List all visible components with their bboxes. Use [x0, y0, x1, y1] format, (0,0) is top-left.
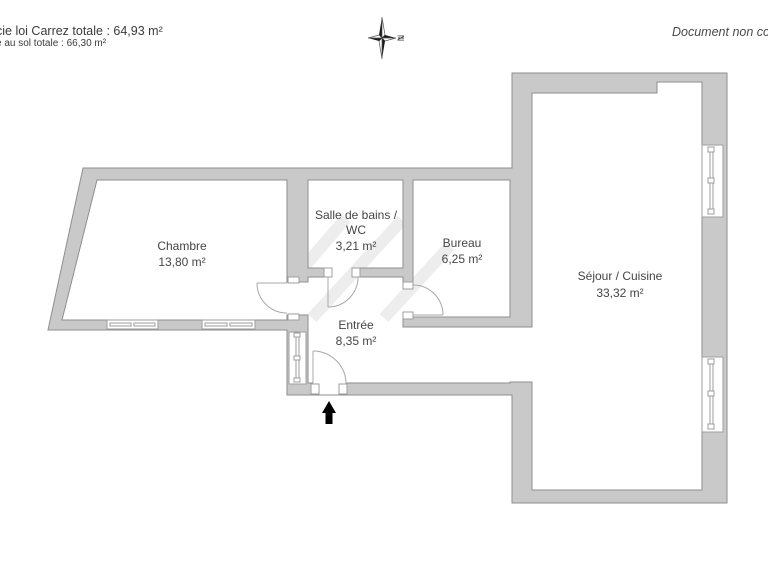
sdb-area: 3,21 m² [336, 239, 377, 253]
carrez-area-text: cie loi Carrez totale : 64,93 m² [0, 24, 163, 38]
disclaimer-text: Document non cor [672, 25, 768, 39]
entry-door-frame [311, 384, 347, 394]
sejour-name: Séjour / Cuisine [578, 269, 663, 283]
chambre-window-1 [107, 320, 158, 329]
chambre-door-frame [288, 277, 299, 320]
chambre-name: Chambre [157, 239, 207, 253]
compass-north-label: N [396, 35, 406, 42]
room-label-chambre: Chambre 13,80 m² [157, 239, 207, 269]
sejour-area: 33,32 m² [596, 286, 643, 300]
entree-name: Entrée [338, 318, 374, 332]
sejour-window-2 [702, 357, 723, 432]
room-label-entree: Entrée 8,35 m² [336, 318, 377, 348]
chambre-area: 13,80 m² [158, 255, 205, 269]
entry-door-arc [313, 351, 346, 384]
room-label-sejour: Séjour / Cuisine 33,32 m² [578, 269, 663, 300]
floor-plan-svg: N [0, 0, 768, 576]
entree-area: 8,35 m² [336, 334, 377, 348]
floor-plan-page: cie loi Carrez totale : 64,93 m² e au so… [0, 0, 768, 576]
bureau-name: Bureau [443, 236, 482, 250]
entree-window [289, 332, 306, 384]
compass-rose-icon: N [368, 17, 406, 59]
chambre-door-arc [257, 283, 287, 313]
sdb-name-line1: Salle de bains / [315, 208, 398, 222]
sejour-window-1 [702, 145, 723, 217]
bureau-area: 6,25 m² [442, 252, 483, 266]
floor-area-text: e au sol totale : 66,30 m² [0, 38, 106, 49]
sdb-door-frame [324, 268, 360, 277]
sdb-name-line2: WC [346, 223, 366, 237]
chambre-window-2 [202, 320, 255, 329]
entrance-arrow-icon [322, 401, 336, 424]
